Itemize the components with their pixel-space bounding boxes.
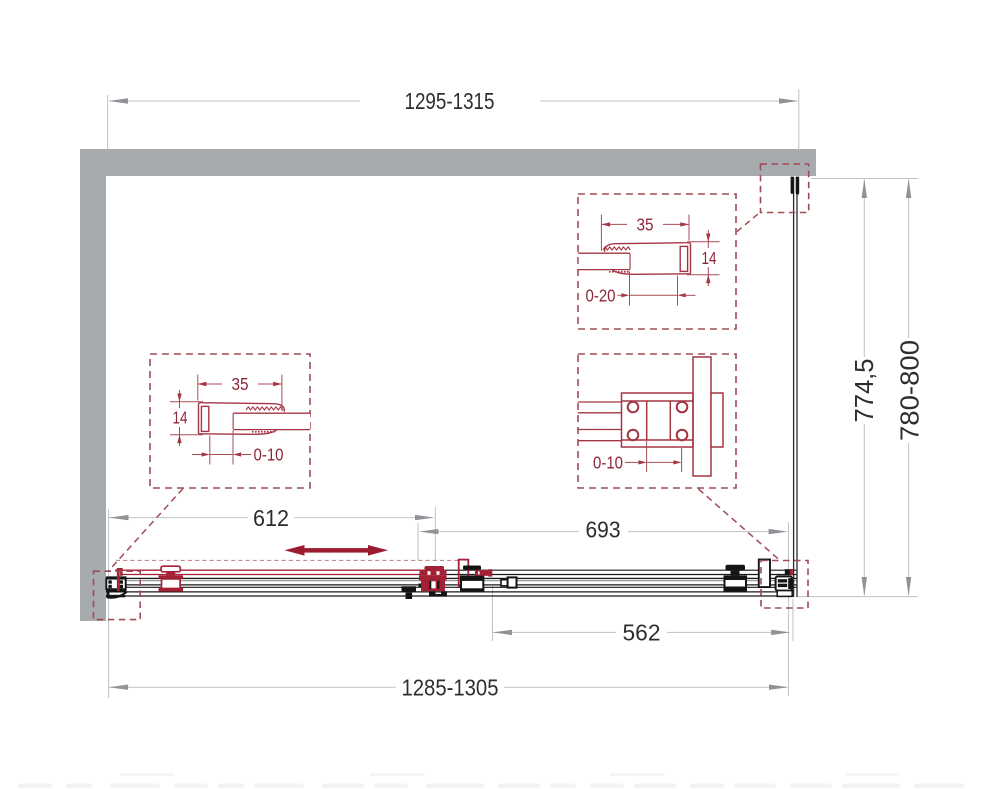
svg-text:774,5: 774,5 (849, 359, 879, 423)
svg-text:562: 562 (623, 620, 661, 646)
svg-text:0-20: 0-20 (586, 286, 616, 306)
svg-text:0-10: 0-10 (593, 453, 623, 473)
svg-text:14: 14 (702, 248, 717, 268)
svg-text:780-800: 780-800 (895, 340, 925, 441)
svg-text:35: 35 (637, 215, 654, 235)
svg-text:35: 35 (232, 374, 249, 394)
svg-text:1285-1305: 1285-1305 (402, 674, 499, 700)
svg-text:14: 14 (173, 408, 188, 428)
svg-text:612: 612 (253, 505, 289, 531)
svg-text:693: 693 (586, 517, 621, 543)
svg-text:1295-1315: 1295-1315 (405, 88, 495, 114)
svg-text:0-10: 0-10 (254, 445, 284, 465)
